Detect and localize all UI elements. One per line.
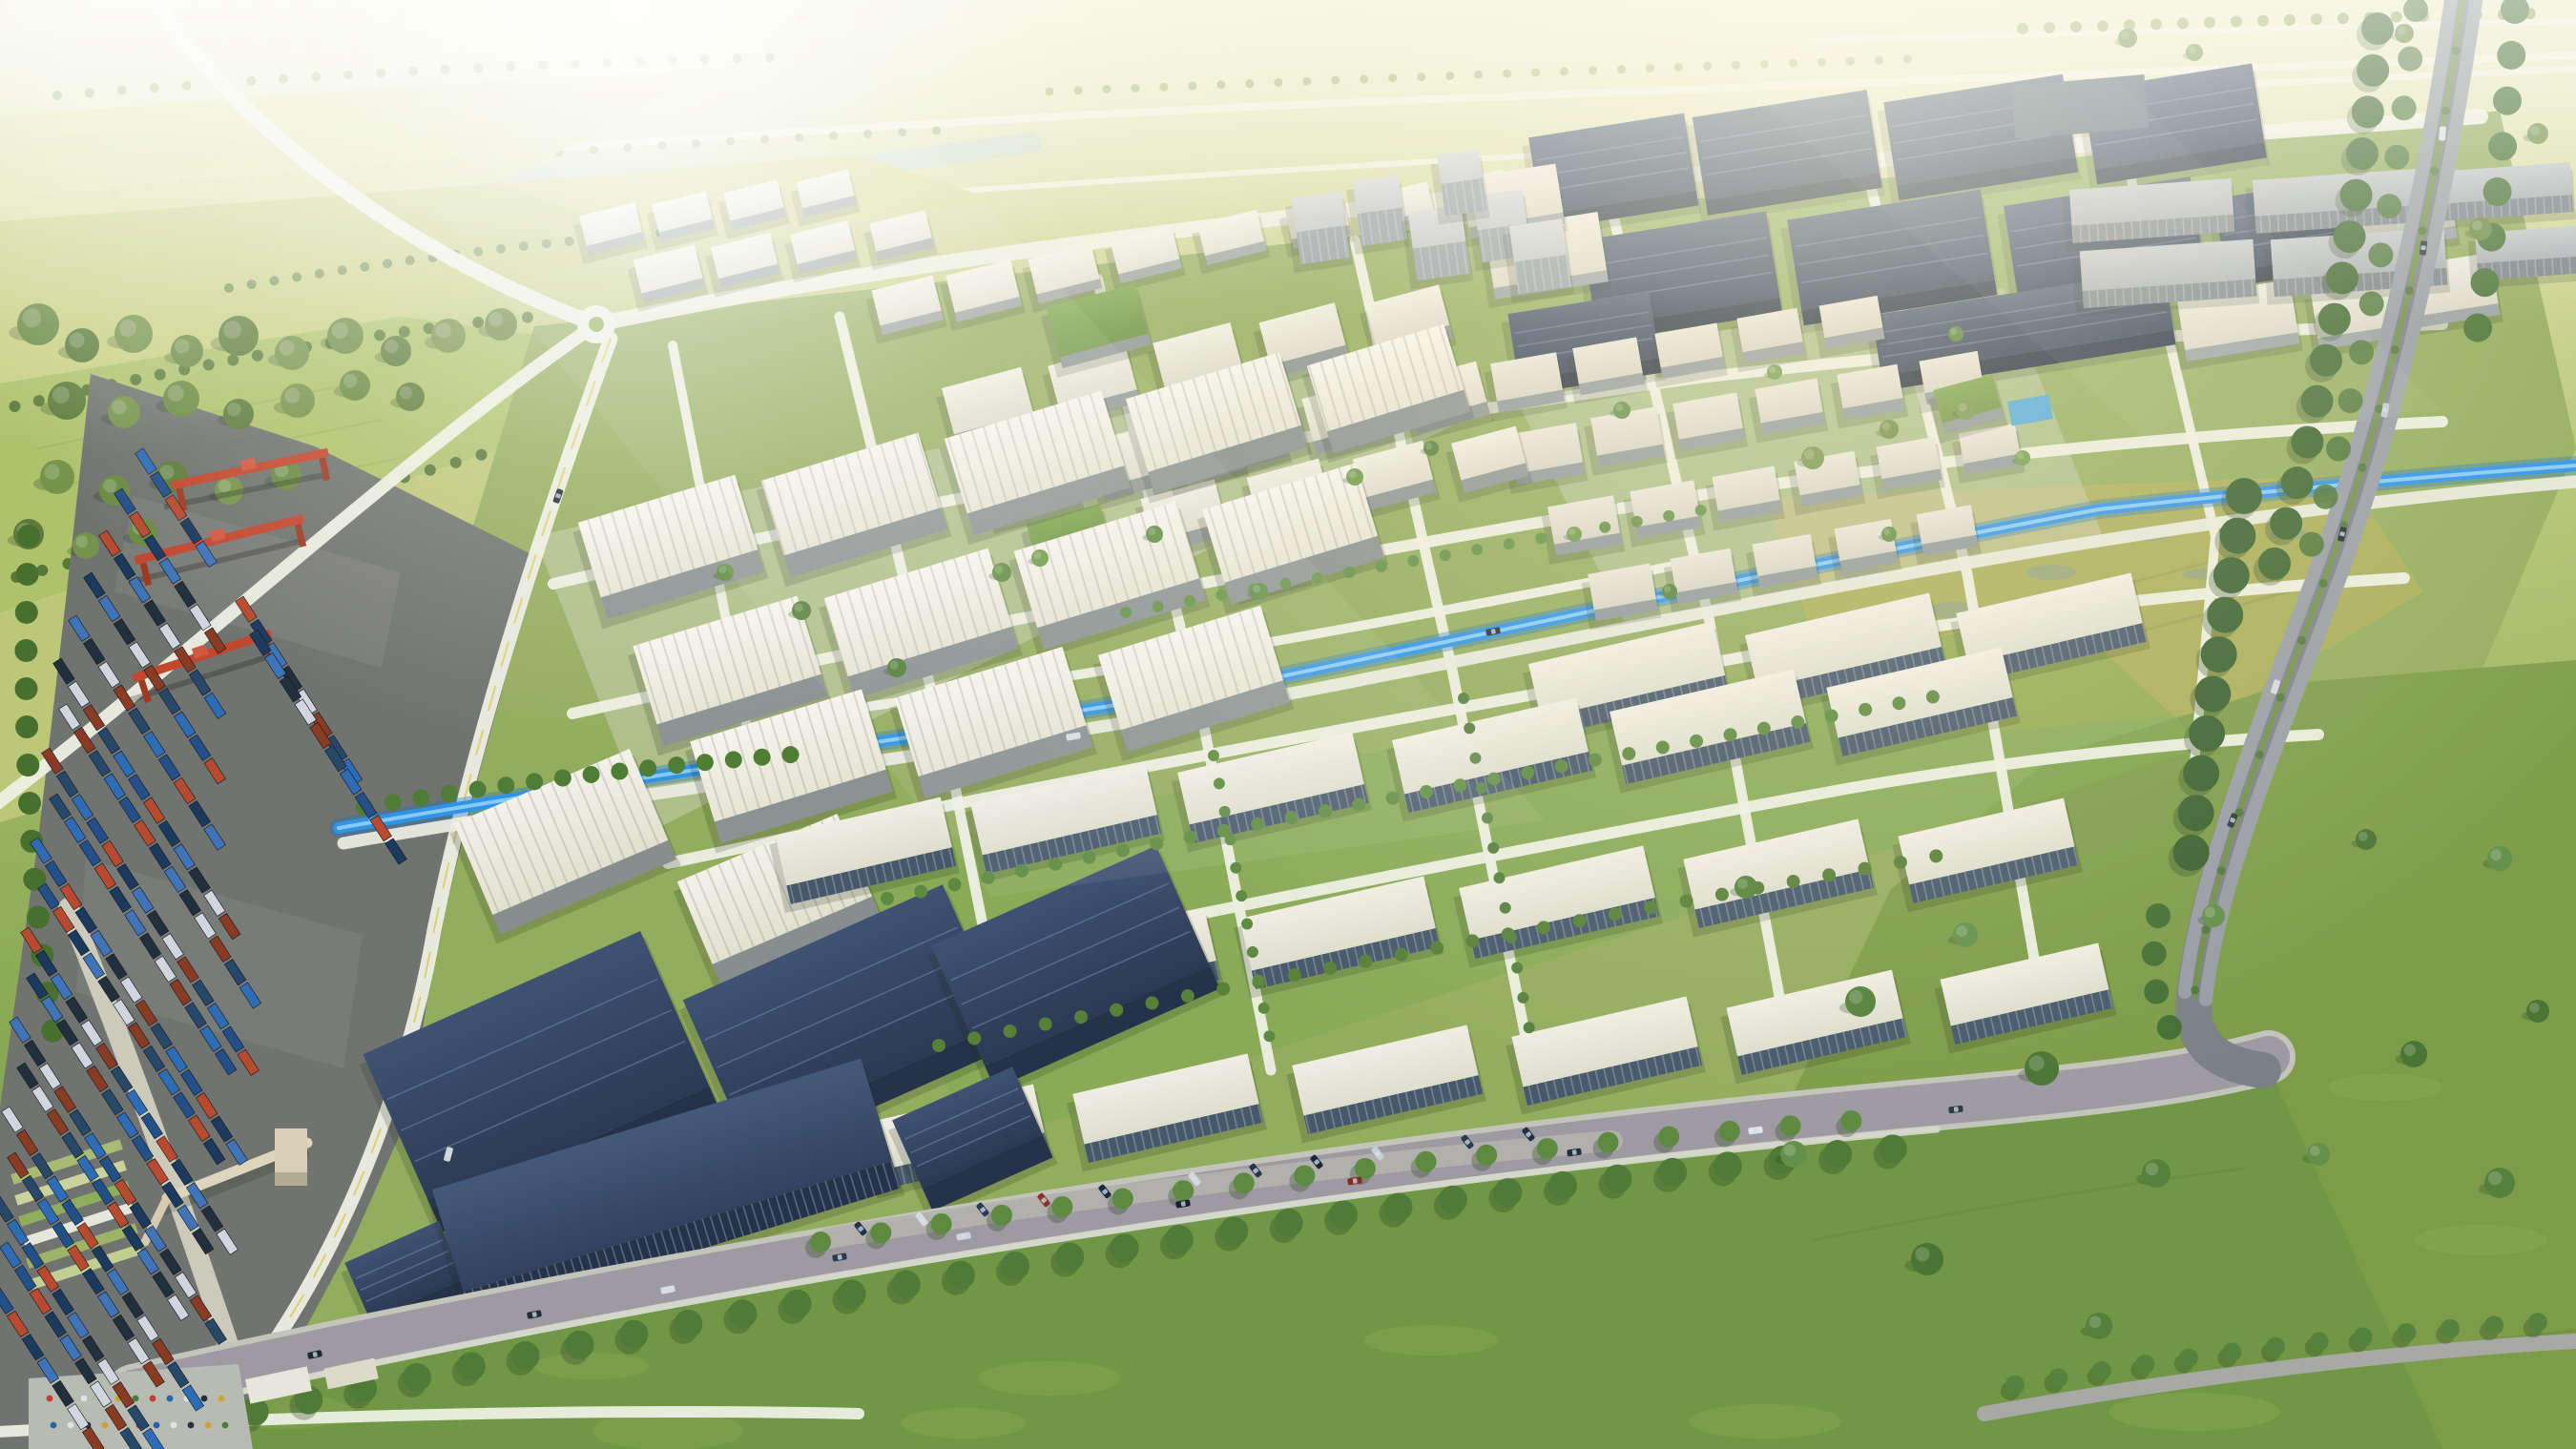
aerial-industrial-park-rendering — [0, 0, 2576, 1449]
scene-svg — [0, 0, 2576, 1449]
aerial-rendering-stage — [0, 0, 2576, 1449]
footbridge-tower — [275, 1128, 307, 1186]
parking-lot — [29, 1364, 253, 1449]
